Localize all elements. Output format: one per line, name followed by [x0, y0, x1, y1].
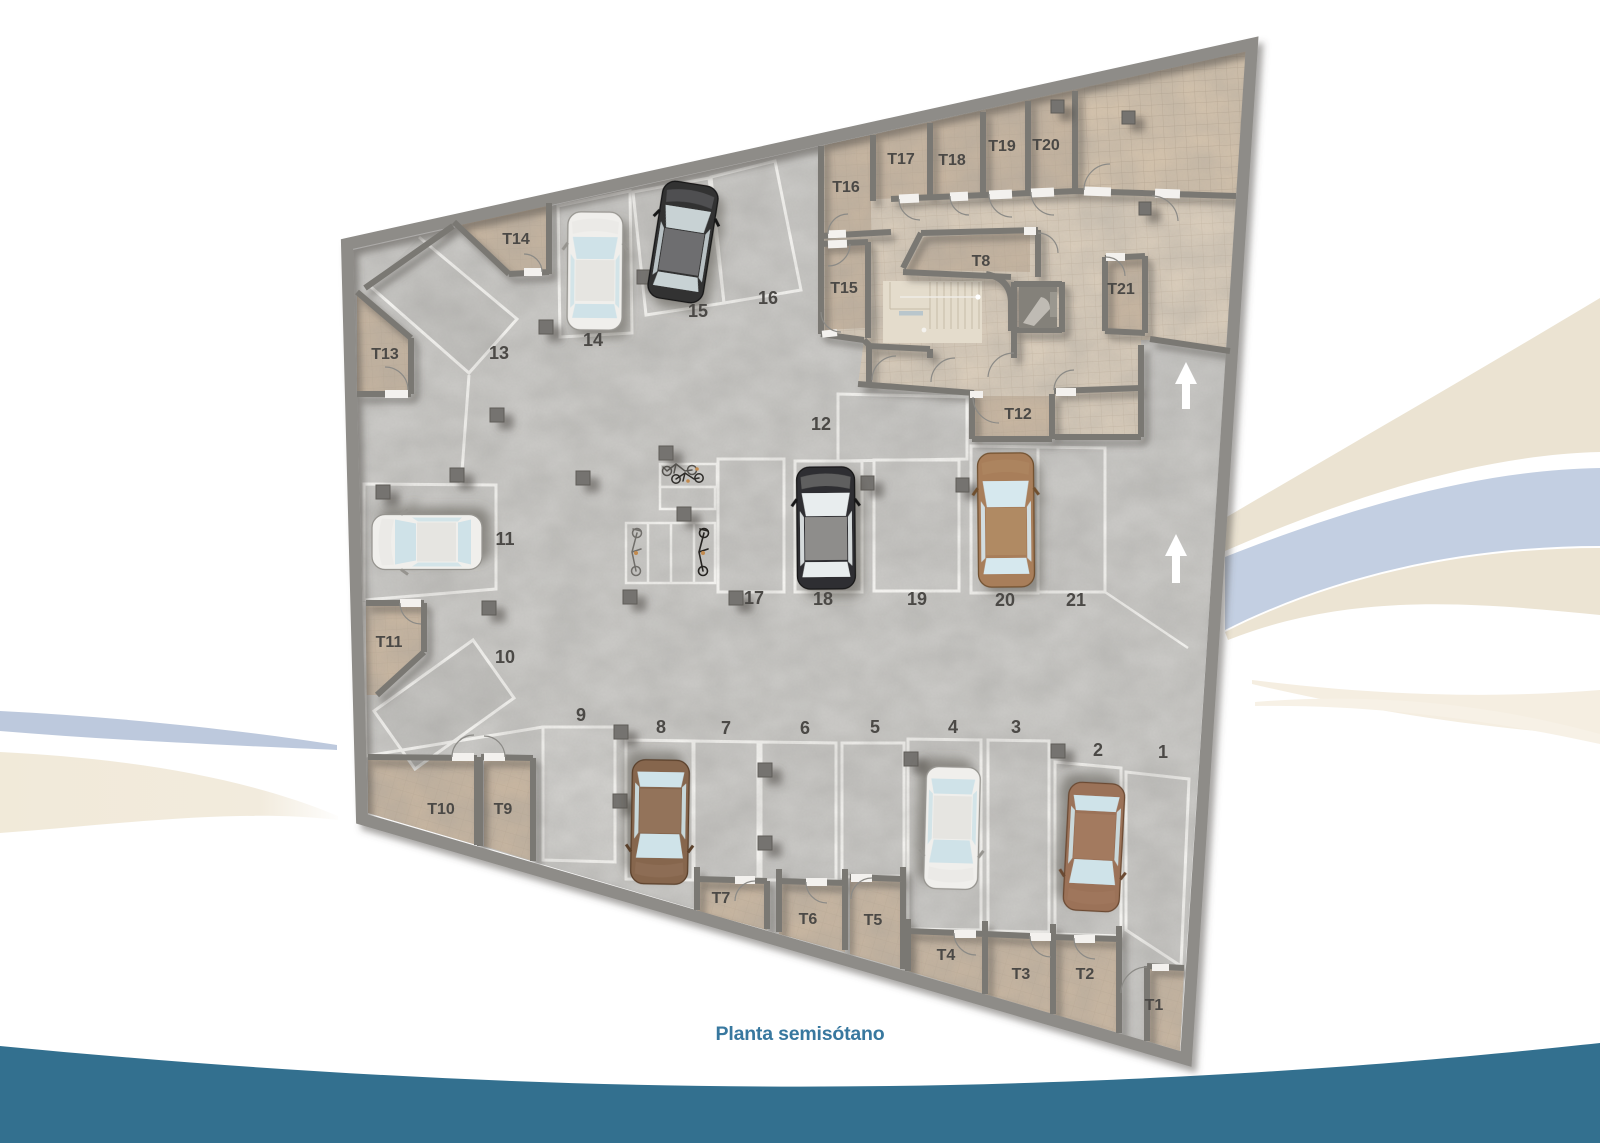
svg-text:T16: T16	[832, 179, 860, 196]
svg-text:4: 4	[948, 717, 958, 737]
svg-text:T20: T20	[1032, 137, 1060, 154]
svg-text:T10: T10	[427, 801, 455, 818]
svg-text:T11: T11	[376, 634, 403, 651]
svg-text:15: 15	[688, 301, 708, 321]
svg-text:T1: T1	[1145, 997, 1164, 1014]
svg-text:T6: T6	[799, 911, 818, 928]
svg-text:7: 7	[721, 718, 731, 738]
svg-text:T3: T3	[1012, 966, 1031, 983]
svg-text:8: 8	[656, 717, 666, 737]
svg-text:20: 20	[995, 590, 1015, 610]
svg-text:T13: T13	[371, 346, 399, 363]
svg-text:12: 12	[811, 414, 831, 434]
svg-text:T8: T8	[972, 253, 991, 270]
svg-text:T18: T18	[938, 152, 966, 169]
svg-text:T19: T19	[988, 138, 1016, 155]
svg-text:T15: T15	[830, 280, 858, 297]
svg-text:14: 14	[583, 330, 603, 350]
svg-text:T14: T14	[502, 231, 530, 248]
svg-text:19: 19	[907, 589, 927, 609]
svg-text:18: 18	[813, 589, 833, 609]
svg-text:11: 11	[495, 529, 514, 549]
svg-text:T5: T5	[864, 912, 883, 929]
svg-text:T4: T4	[937, 947, 956, 964]
svg-text:10: 10	[495, 647, 515, 667]
svg-text:5: 5	[870, 717, 880, 737]
svg-text:6: 6	[800, 718, 810, 738]
svg-text:Planta semisótano: Planta semisótano	[716, 1023, 885, 1045]
svg-text:9: 9	[576, 705, 586, 725]
svg-text:T21: T21	[1107, 281, 1135, 298]
svg-text:T7: T7	[712, 890, 731, 907]
svg-text:1: 1	[1158, 742, 1168, 762]
svg-text:3: 3	[1011, 717, 1021, 737]
svg-text:16: 16	[758, 288, 778, 308]
svg-text:T17: T17	[887, 151, 915, 168]
svg-text:T2: T2	[1076, 966, 1095, 983]
svg-text:2: 2	[1093, 740, 1103, 760]
svg-text:T9: T9	[494, 801, 513, 818]
svg-text:T12: T12	[1004, 406, 1032, 423]
svg-text:21: 21	[1066, 590, 1086, 610]
svg-text:13: 13	[489, 343, 509, 363]
svg-text:17: 17	[744, 588, 764, 608]
